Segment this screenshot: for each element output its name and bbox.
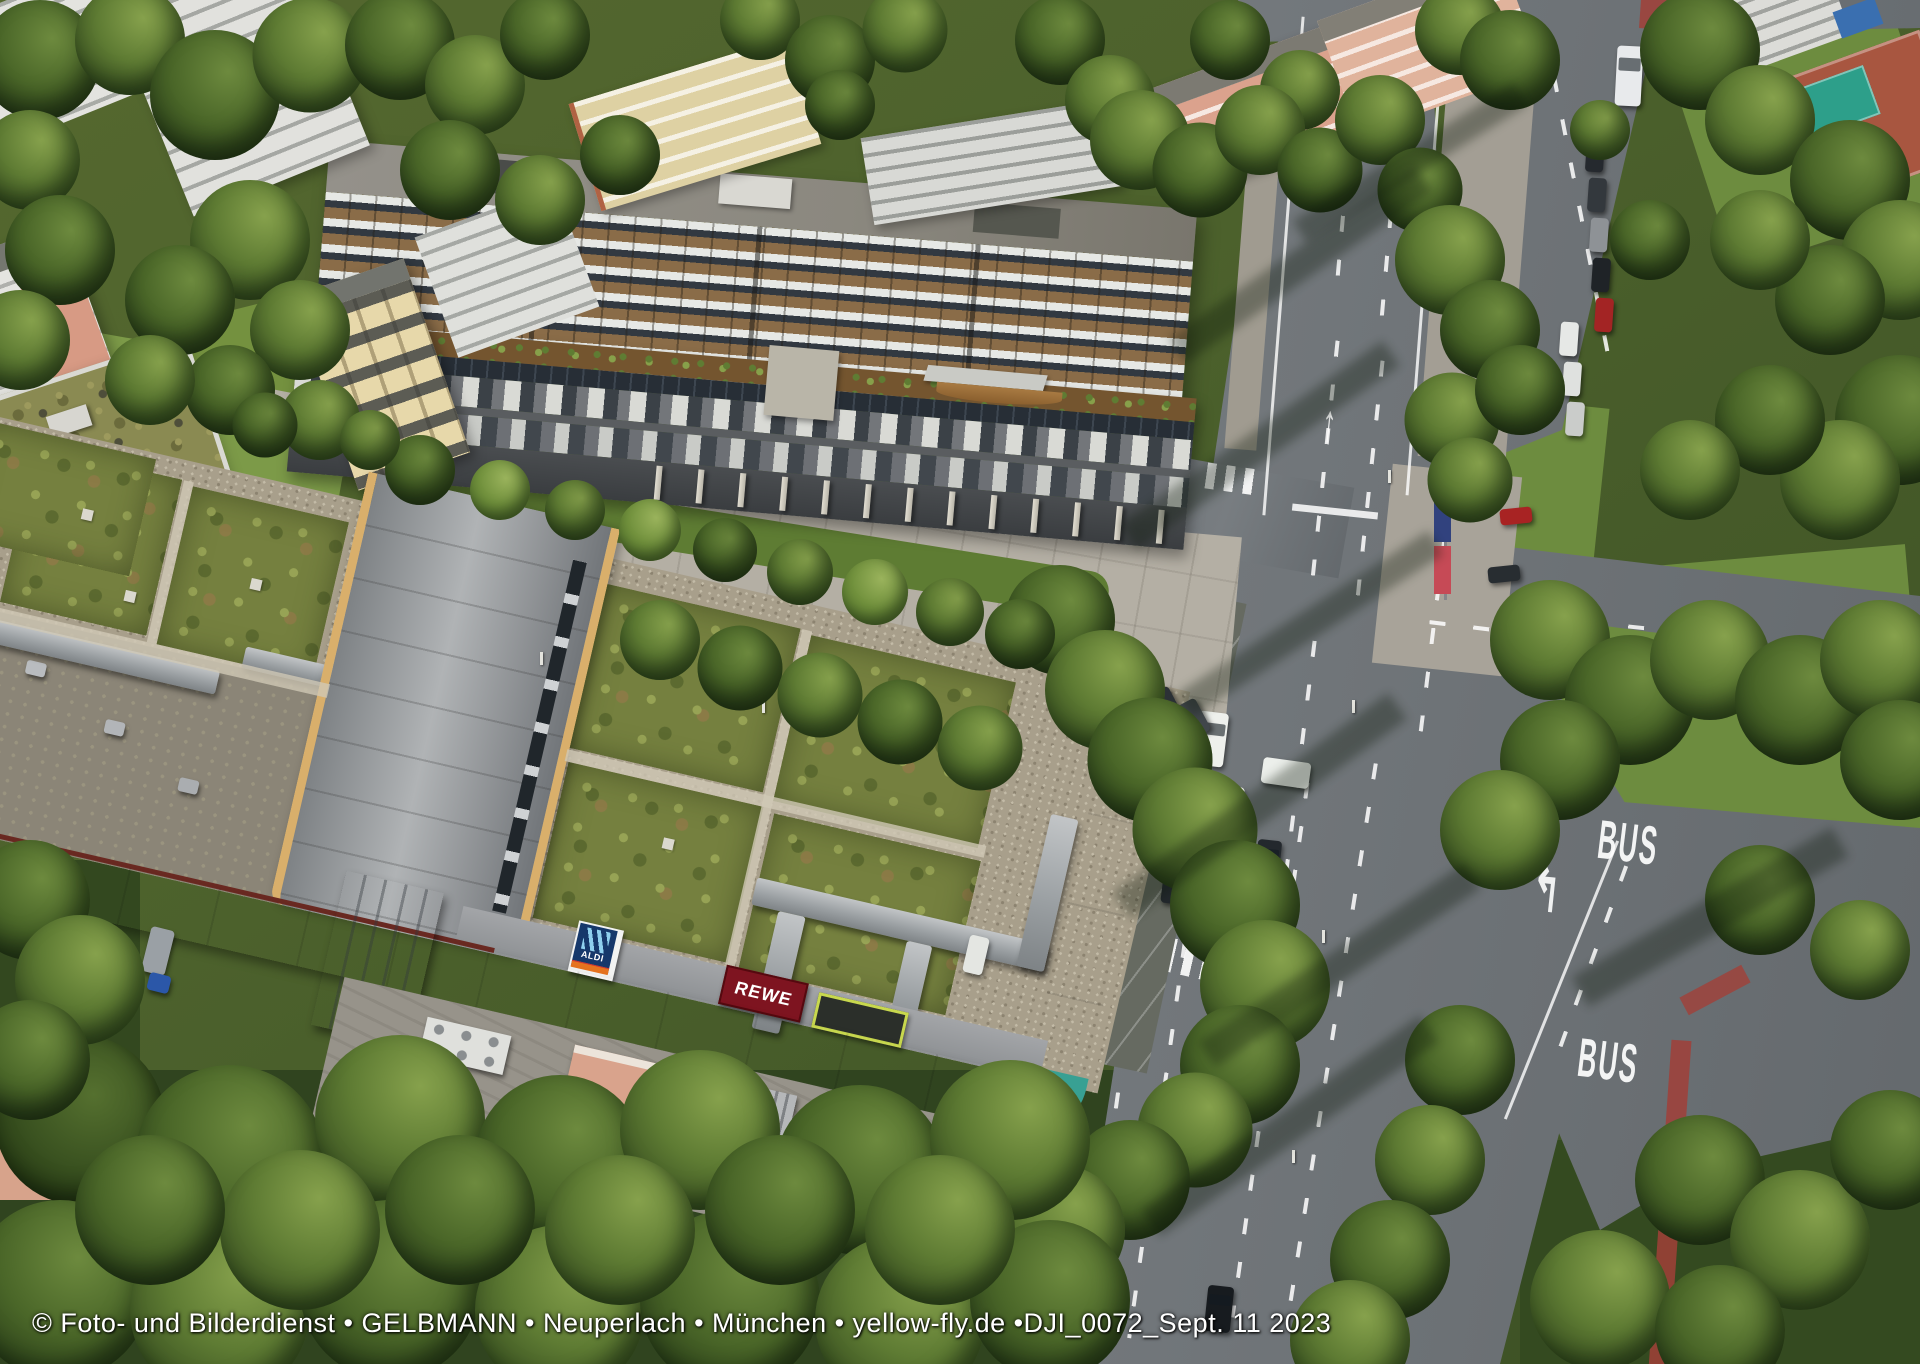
- bus-lane-marking: BUS: [1574, 1025, 1642, 1097]
- vehicle-windshield: [1208, 1294, 1231, 1306]
- tree-canopy: [1640, 420, 1740, 520]
- tree-canopy: [805, 70, 875, 140]
- tree-canopy: [693, 518, 757, 582]
- car-red-parked: [1594, 297, 1614, 332]
- tree-canopy: [865, 1155, 1015, 1305]
- tree-canopy: [75, 1135, 225, 1285]
- tree-canopy: [1475, 345, 1565, 435]
- tree-canopy: [842, 559, 908, 625]
- tree-canopy: [233, 393, 298, 458]
- car-white-parked: [1559, 321, 1579, 356]
- tree-canopy: [1428, 438, 1513, 523]
- tree-canopy: [470, 460, 530, 520]
- vehicle-windshield: [1618, 57, 1641, 71]
- tree-canopy: [985, 599, 1055, 669]
- entrance-tower: [764, 345, 840, 421]
- tree-canopy: [220, 1150, 380, 1310]
- tree-canopy: [1810, 900, 1910, 1000]
- street-lamp: [1352, 700, 1355, 713]
- tree-canopy: [620, 600, 700, 680]
- plaza-lamp: [540, 652, 543, 665]
- tree-canopy: [1375, 1105, 1485, 1215]
- street-lamp: [1388, 470, 1391, 483]
- photographer-watermark: © Foto- und Bilderdienst • GELBMANN • Ne…: [32, 1308, 1331, 1339]
- tree-canopy: [580, 115, 660, 195]
- car-dark-street: [1487, 564, 1520, 583]
- car-parked: [1587, 177, 1607, 212]
- tree-canopy: [1530, 1230, 1670, 1364]
- tree-canopy: [385, 1135, 535, 1285]
- car-red-street: [1499, 506, 1532, 525]
- tree-canopy: [495, 155, 585, 245]
- tree-canopy: [1710, 190, 1810, 290]
- car-silver-parked: [1565, 401, 1585, 436]
- tree-canopy: [340, 410, 400, 470]
- car-parked: [1591, 257, 1611, 292]
- tree-canopy: [105, 335, 195, 425]
- tree-canopy: [1570, 100, 1630, 160]
- tree-canopy: [500, 0, 590, 80]
- tree-canopy: [698, 626, 783, 711]
- tree-canopy: [1610, 200, 1690, 280]
- aerial-photo-scene: BUS BUS ↰ ↑ ↑: [0, 0, 1920, 1364]
- tree-canopy: [863, 0, 948, 73]
- tree-canopy: [545, 480, 605, 540]
- tree-canopy: [5, 195, 115, 305]
- roof-penthouse: [718, 173, 792, 209]
- tree-canopy: [858, 680, 943, 765]
- tree-canopy: [400, 120, 500, 220]
- tree-canopy: [916, 578, 984, 646]
- bus-city: [1614, 45, 1643, 106]
- street-lamp: [1322, 930, 1325, 943]
- rewe-sign-text: REWE: [732, 977, 795, 1010]
- tree-canopy: [767, 539, 833, 605]
- car-parked: [1589, 217, 1609, 252]
- bus-lane-marking: BUS: [1594, 807, 1662, 879]
- tree-canopy: [619, 499, 681, 561]
- street-lamp: [1292, 1150, 1295, 1163]
- tree-canopy: [545, 1155, 695, 1305]
- tree-canopy: [1190, 0, 1270, 80]
- aldi-logo-field: ALDI: [571, 923, 618, 974]
- tree-canopy: [938, 706, 1023, 791]
- tree-canopy: [705, 1135, 855, 1285]
- tree-canopy: [778, 653, 863, 738]
